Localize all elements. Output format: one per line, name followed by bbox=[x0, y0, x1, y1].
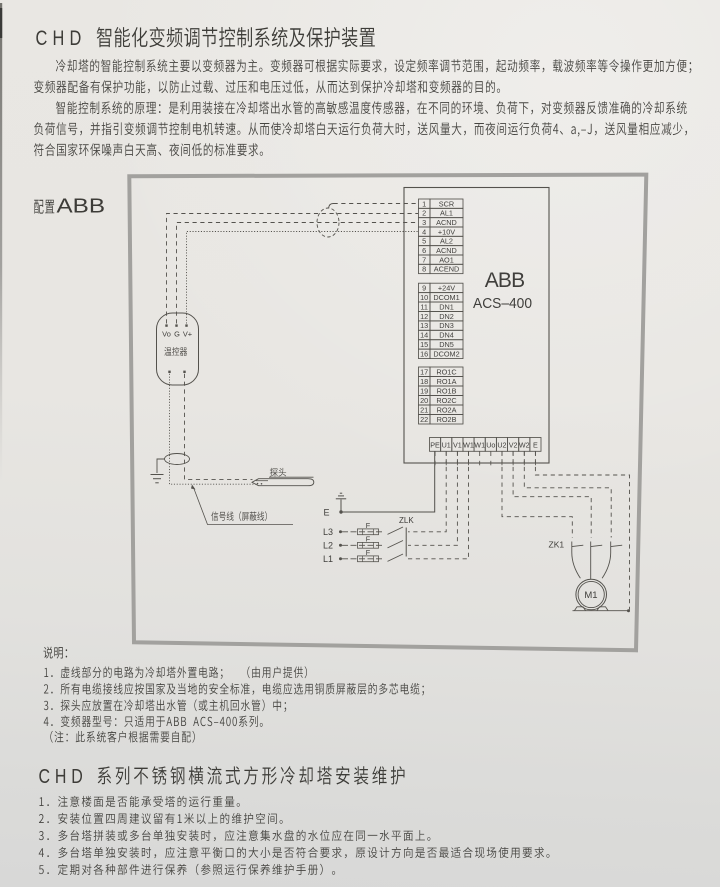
svg-text:12: 12 bbox=[420, 312, 428, 321]
svg-text:RO2A: RO2A bbox=[437, 405, 457, 414]
svg-text:DCOM1: DCOM1 bbox=[433, 293, 459, 302]
svg-text:DN2: DN2 bbox=[439, 312, 454, 321]
svg-text:SCR: SCR bbox=[439, 199, 454, 208]
svg-text:RO1A: RO1A bbox=[437, 377, 457, 386]
svg-text:F: F bbox=[366, 521, 371, 530]
svg-text:3: 3 bbox=[422, 218, 426, 227]
svg-text:L2: L2 bbox=[323, 540, 333, 550]
svg-text:AL2: AL2 bbox=[440, 237, 453, 246]
svg-text:Uo: Uo bbox=[486, 441, 495, 450]
svg-text:ACND: ACND bbox=[436, 218, 457, 227]
svg-text:AL1: AL1 bbox=[440, 209, 453, 218]
svg-text:ABB: ABB bbox=[485, 269, 525, 292]
svg-text:F: F bbox=[366, 535, 371, 544]
svg-text:ACEND: ACEND bbox=[434, 265, 460, 274]
svg-text:V2: V2 bbox=[509, 441, 518, 450]
svg-text:RO1C: RO1C bbox=[436, 367, 456, 376]
svg-text:13: 13 bbox=[420, 321, 428, 330]
svg-text:E: E bbox=[323, 507, 329, 517]
svg-text:CHD: CHD bbox=[36, 26, 87, 49]
svg-text:U2: U2 bbox=[497, 441, 506, 450]
svg-text:G: G bbox=[174, 330, 180, 339]
svg-text:L3: L3 bbox=[323, 527, 333, 537]
svg-text:PE: PE bbox=[430, 441, 440, 450]
svg-text:4: 4 bbox=[422, 227, 426, 236]
svg-text:M1: M1 bbox=[584, 590, 597, 601]
svg-text:ABB: ABB bbox=[57, 196, 106, 218]
svg-text:11: 11 bbox=[420, 302, 428, 311]
svg-text:7: 7 bbox=[422, 255, 426, 264]
svg-text:RO1B: RO1B bbox=[437, 386, 457, 395]
svg-text:17: 17 bbox=[420, 367, 428, 376]
svg-text:F: F bbox=[366, 548, 371, 557]
svg-text:U1: U1 bbox=[442, 441, 451, 450]
svg-text:V1: V1 bbox=[453, 441, 462, 450]
svg-text:18: 18 bbox=[420, 377, 428, 386]
svg-text:5: 5 bbox=[422, 237, 426, 246]
svg-text:ACS–400: ACS–400 bbox=[473, 295, 532, 312]
svg-text:14: 14 bbox=[420, 331, 428, 340]
svg-text:V+: V+ bbox=[183, 330, 192, 339]
svg-text:6: 6 bbox=[422, 246, 426, 255]
svg-text:+24V: +24V bbox=[438, 284, 455, 293]
svg-text:ACND: ACND bbox=[436, 246, 457, 255]
svg-text:22: 22 bbox=[420, 415, 428, 424]
svg-text:W2: W2 bbox=[519, 441, 530, 450]
svg-text:20: 20 bbox=[420, 396, 428, 405]
svg-text:L1: L1 bbox=[323, 554, 333, 564]
svg-text:DN3: DN3 bbox=[439, 321, 454, 330]
svg-text:E: E bbox=[533, 441, 538, 450]
svg-text:ZK1: ZK1 bbox=[549, 540, 565, 550]
svg-text:DCOM2: DCOM2 bbox=[433, 349, 459, 358]
svg-text:DN4: DN4 bbox=[439, 331, 454, 340]
svg-text:16: 16 bbox=[420, 349, 428, 358]
svg-text:W1: W1 bbox=[463, 441, 474, 450]
svg-text:1: 1 bbox=[422, 199, 426, 208]
svg-text:21: 21 bbox=[420, 405, 428, 414]
svg-text:CHD: CHD bbox=[39, 764, 88, 787]
svg-text:+10V: +10V bbox=[438, 227, 455, 236]
svg-text:2: 2 bbox=[422, 209, 426, 218]
svg-text:DN5: DN5 bbox=[439, 340, 454, 349]
svg-text:AO1: AO1 bbox=[439, 255, 454, 264]
svg-text:10: 10 bbox=[420, 293, 428, 302]
svg-text:RO2B: RO2B bbox=[437, 415, 457, 424]
svg-text:Vo: Vo bbox=[162, 330, 171, 339]
svg-text:19: 19 bbox=[420, 386, 428, 395]
svg-text:15: 15 bbox=[420, 340, 428, 349]
svg-text:8: 8 bbox=[422, 265, 426, 274]
svg-text:DN1: DN1 bbox=[439, 302, 454, 311]
svg-text:RO2C: RO2C bbox=[436, 396, 456, 405]
svg-text:ZLK: ZLK bbox=[399, 516, 414, 525]
svg-text:9: 9 bbox=[422, 284, 426, 293]
svg-text:W1: W1 bbox=[474, 441, 485, 450]
